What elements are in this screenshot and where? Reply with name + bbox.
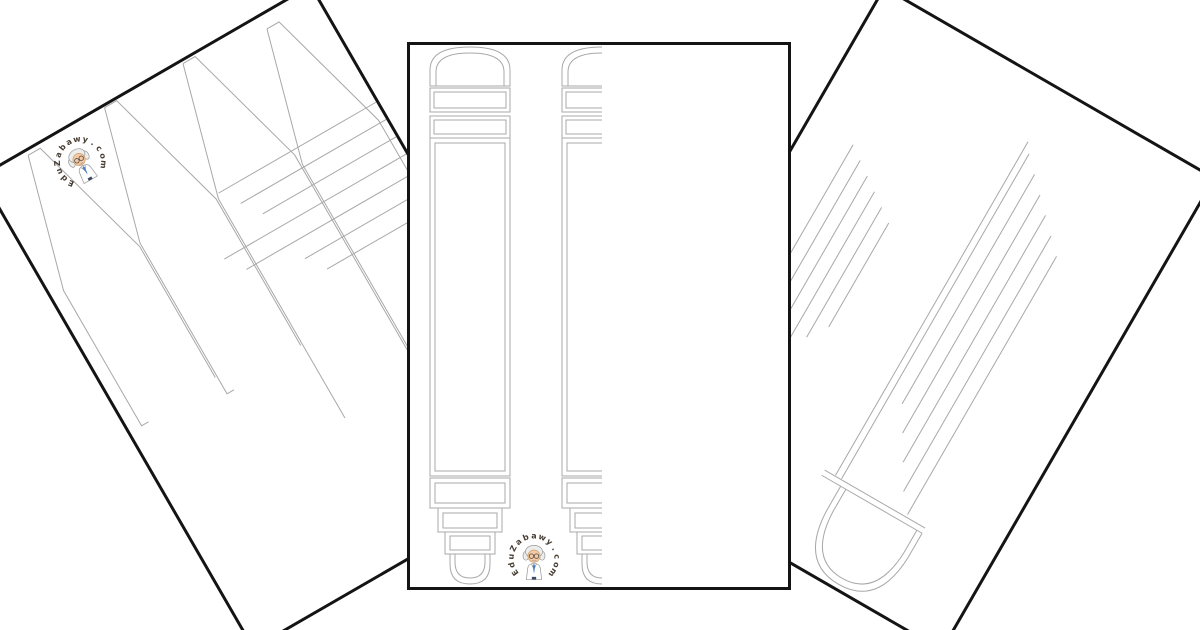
trace-lines	[194, 102, 436, 311]
marker-outline-complete	[430, 47, 510, 584]
logo-letter: c	[552, 554, 560, 560]
marker-cap-outline	[798, 486, 922, 607]
crayon-outline	[151, 38, 424, 422]
eduzabawy-logo: EduZabawy.com	[506, 531, 562, 587]
logo-letter: E	[511, 568, 521, 577]
logo-letter: Z	[509, 544, 519, 553]
logo-letter: Z	[54, 160, 62, 166]
marker-collar-lines	[822, 470, 925, 533]
marker-outline-half	[562, 47, 642, 584]
professor-mascot-icon	[521, 544, 548, 580]
logo-letter: .	[89, 139, 96, 147]
logo-letter: w	[73, 135, 82, 144]
logo-letter: b	[522, 533, 530, 543]
marker-cap-inner-line	[806, 489, 917, 598]
logo-letter: c	[94, 144, 103, 153]
logo-letter: o	[98, 152, 107, 159]
worksheet-page-center: EduZabawy.com	[407, 42, 791, 590]
logo-letter: u	[507, 553, 516, 560]
markers-line-art	[410, 45, 788, 587]
logo-letter: .	[550, 546, 559, 552]
marker-body-strokes	[836, 142, 1100, 516]
logo-letter: a	[531, 533, 536, 541]
worksheets-preview-canvas: EduZabawy.com	[0, 0, 1200, 630]
